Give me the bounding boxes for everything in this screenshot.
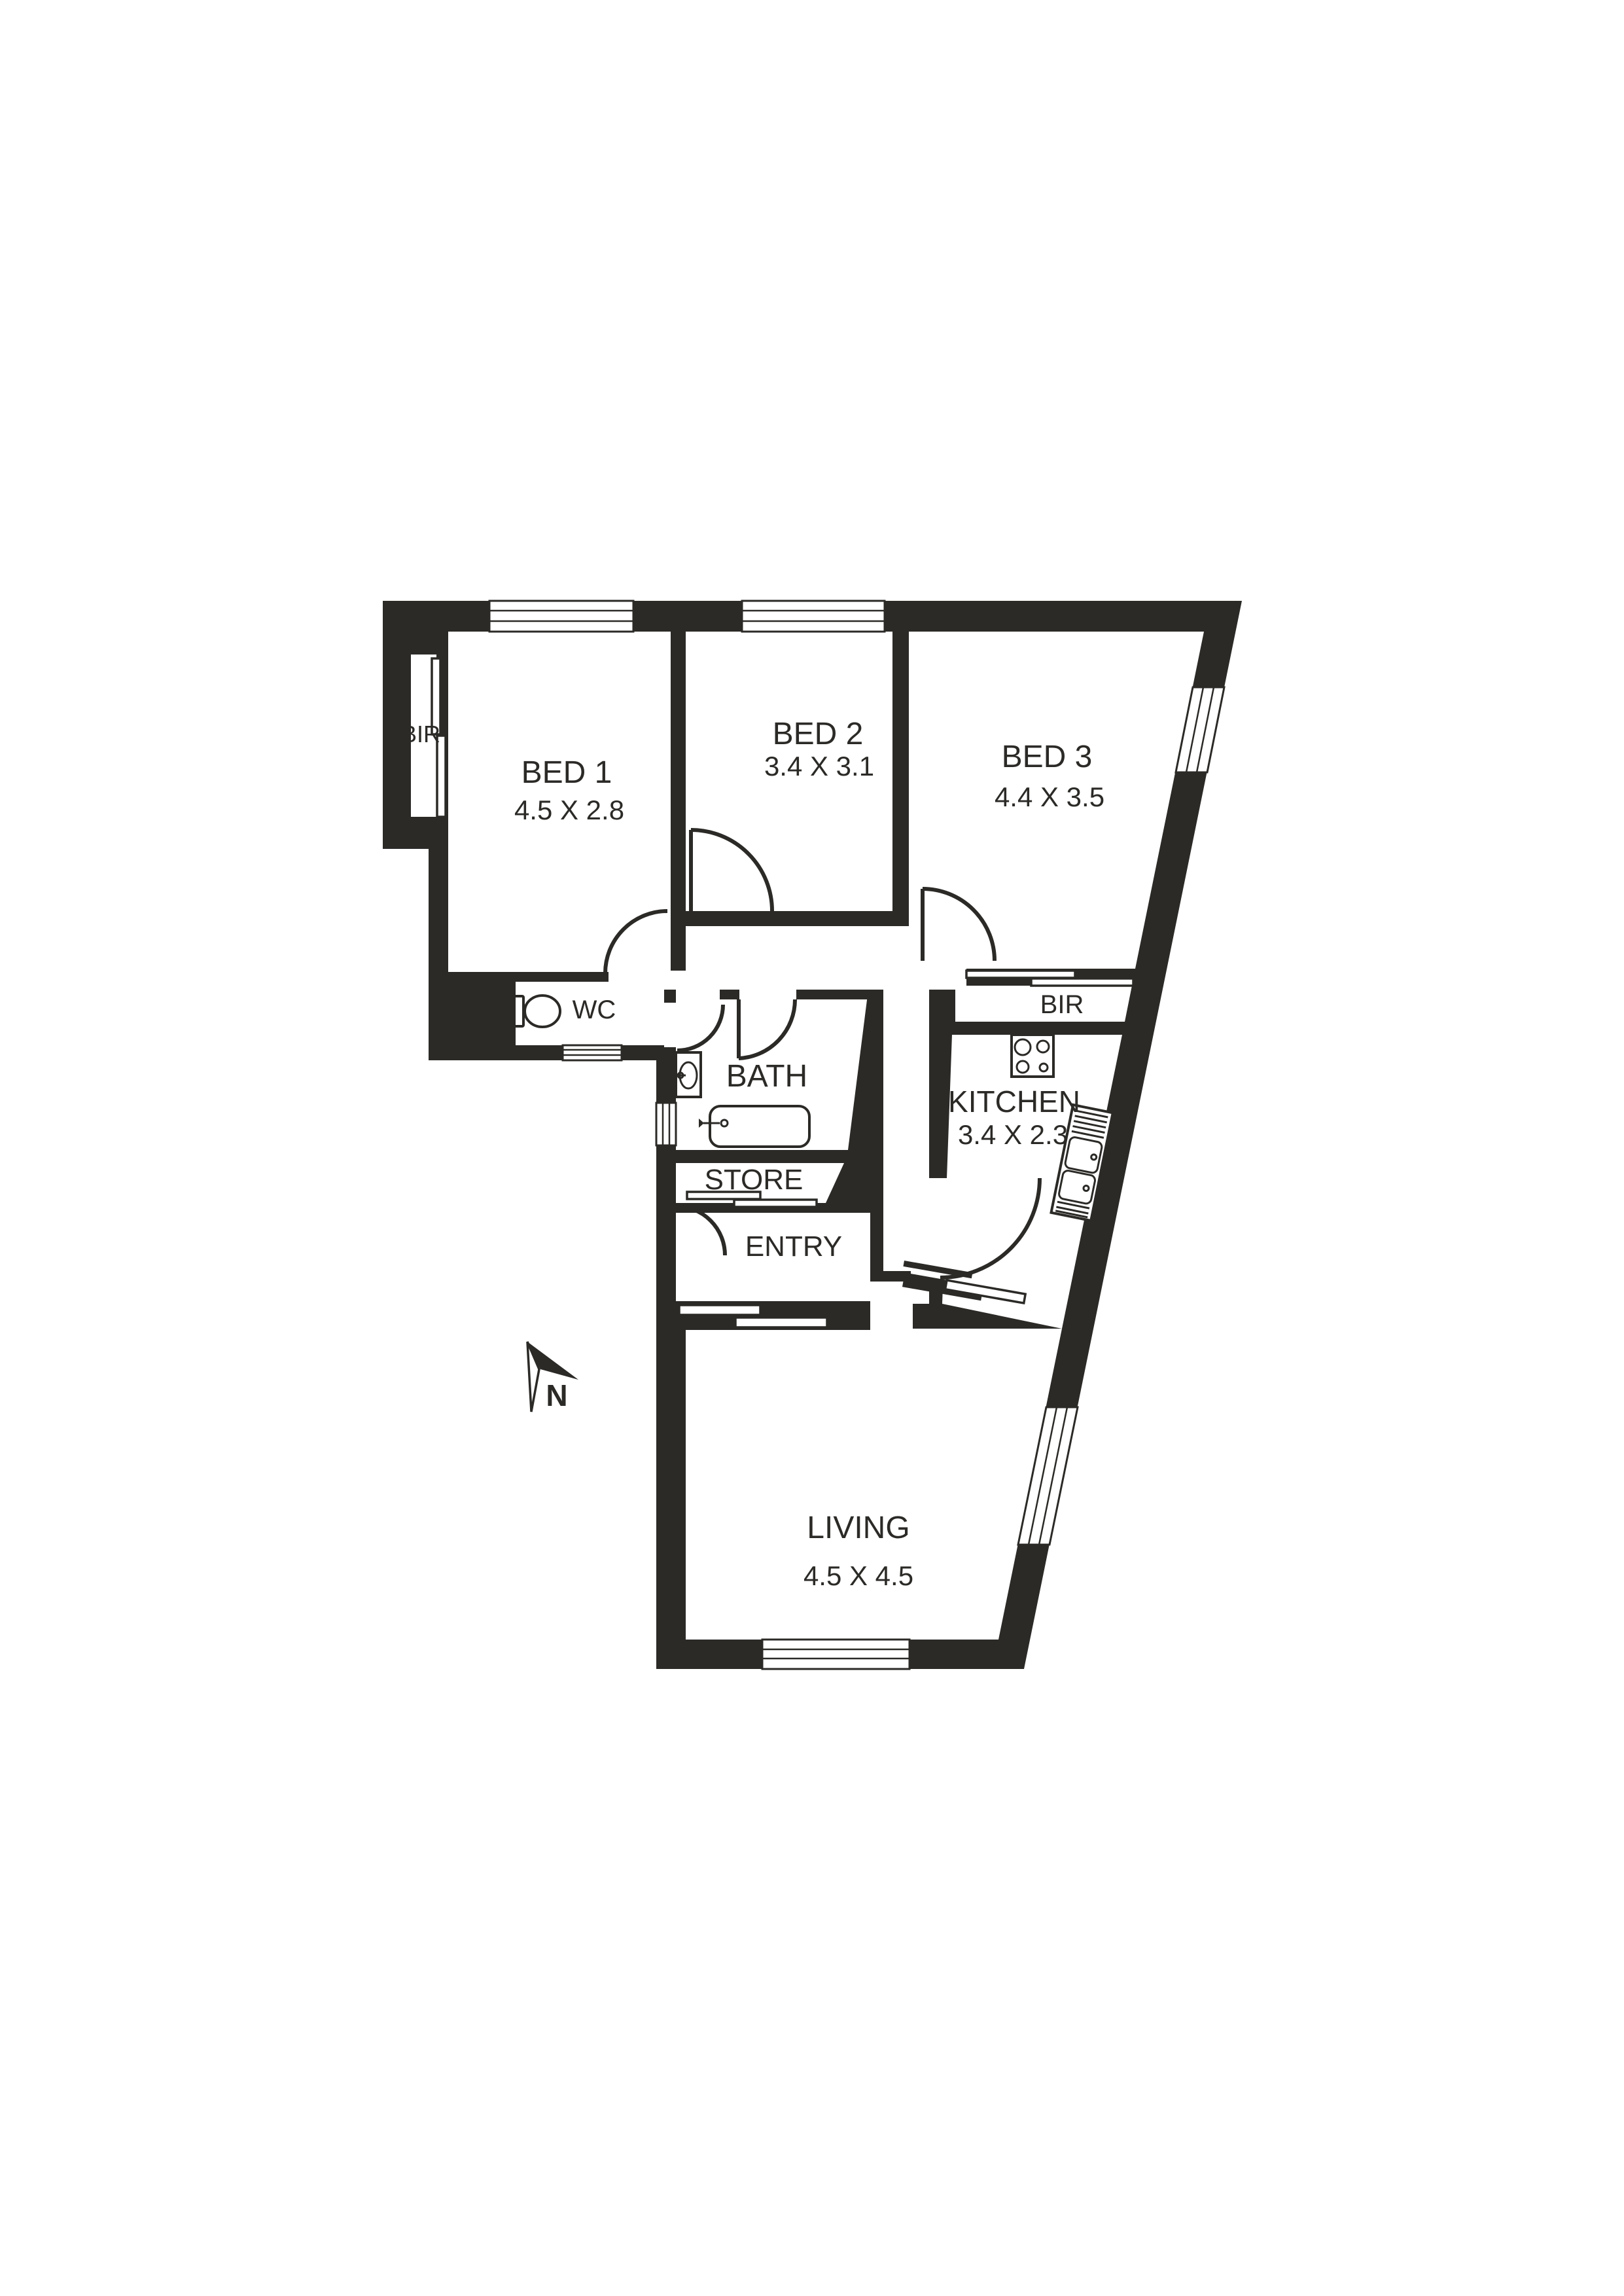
living-passage-gap [870,1282,913,1332]
window-living-bottom [762,1640,909,1669]
label-wc: WC [573,996,616,1024]
dims-bed3: 4.4 X 3.5 [995,781,1104,812]
label-living: LIVING [807,1511,909,1545]
wc-door-gap [664,1003,679,1047]
label-entry: ENTRY [745,1230,842,1263]
label-bir1: BIR [401,721,440,747]
room-living [686,1329,1062,1640]
label-bed1: BED 1 [521,755,612,790]
bath-top-wall-right [796,990,872,999]
label-bir3: BIR [1040,990,1084,1019]
hallway-bed1-opening [609,971,686,990]
cooktop-icon [1012,1035,1053,1077]
window-bed2-top [742,601,885,632]
dims-bed2: 3.4 X 3.1 [764,751,874,781]
bathtub-icon [699,1106,809,1147]
window-wc [563,1045,622,1060]
floorplan-drawing: N BIR BED 1 4.5 X 2.8 BED 2 3.4 X 3.1 BE… [0,0,1624,2296]
dims-kitchen: 3.4 X 2.3 [958,1119,1068,1150]
label-store: STORE [705,1164,803,1196]
label-bath: BATH [726,1059,807,1094]
hallway-bed3-nook [909,926,966,986]
bath-top-wall-left [720,990,739,999]
label-bed3: BED 3 [1002,740,1093,774]
floorplan-page: N BIR BED 1 4.5 X 2.8 BED 2 3.4 X 3.1 BE… [0,0,1624,2296]
kitchen-door-gap [926,1178,955,1280]
north-arrow-icon: N [527,1342,578,1412]
toilet-icon [514,996,560,1027]
dims-bed1: 4.5 X 2.8 [514,795,624,825]
north-label: N [546,1378,567,1412]
dims-living: 4.5 X 4.5 [803,1560,913,1591]
window-bed1-top [489,601,633,632]
window-bath [656,1103,676,1145]
vanity-basin-icon [676,1052,701,1097]
label-kitchen: KITCHEN [948,1085,1080,1119]
label-bed2: BED 2 [773,717,864,751]
